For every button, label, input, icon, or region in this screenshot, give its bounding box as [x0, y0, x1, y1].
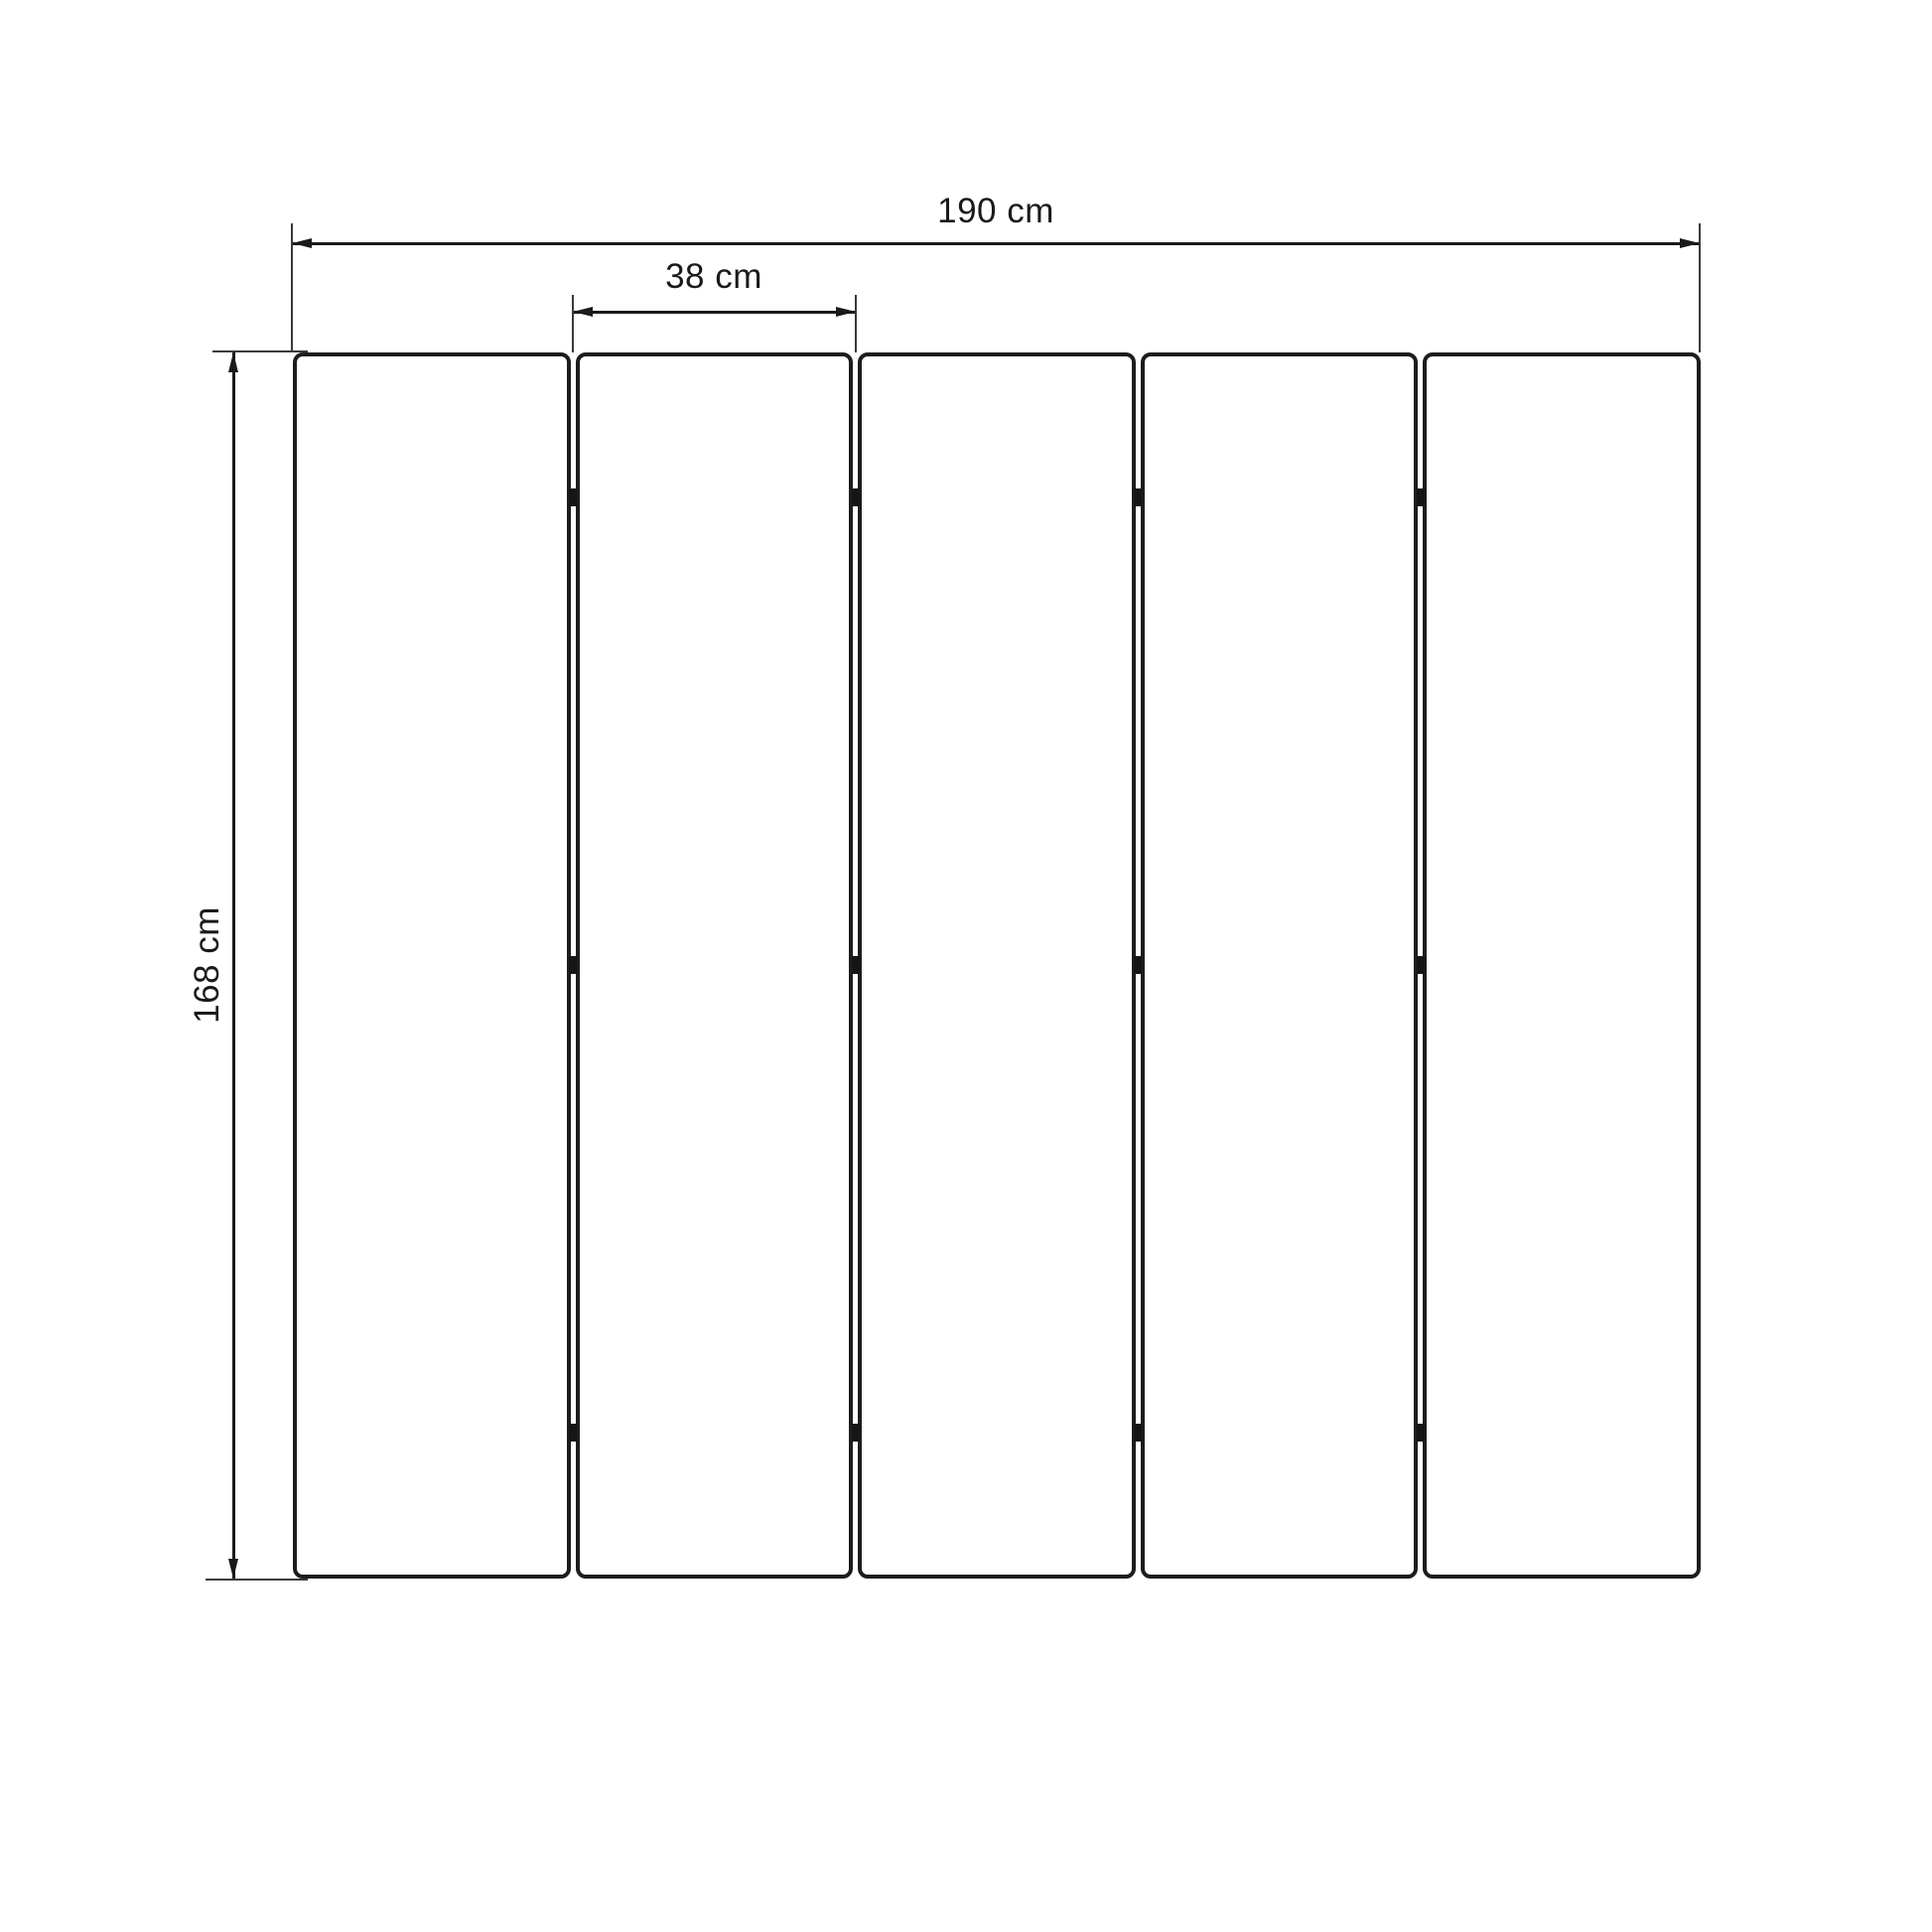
hinge-icon	[1417, 956, 1425, 974]
total-width-dimension-label: 190 cm	[887, 191, 1105, 232]
arrowhead-down-icon	[228, 1559, 238, 1579]
hinge-icon	[1134, 956, 1142, 974]
hinge-icon	[852, 956, 860, 974]
hinge-icon	[569, 1424, 577, 1442]
hinge-icon	[1134, 488, 1142, 506]
extension-line-panel-left	[572, 295, 574, 352]
drawing-canvas: 190 cm 38 cm 168 cm	[0, 0, 1932, 1932]
extension-line-total-right	[1699, 223, 1701, 352]
folding-screen	[293, 352, 1701, 1579]
panel-2	[576, 352, 854, 1579]
hinge-icon	[1417, 1424, 1425, 1442]
total-width-dimension-line	[292, 242, 1700, 245]
hinge-icon	[1134, 1424, 1142, 1442]
panel-width-dimension-line	[573, 311, 856, 314]
arrowhead-right-icon	[836, 307, 856, 317]
arrowhead-right-icon	[1680, 238, 1700, 248]
hinge-icon	[1417, 488, 1425, 506]
height-dimension-label: 168 cm	[187, 856, 228, 1074]
panel-5	[1423, 352, 1701, 1579]
arrowhead-left-icon	[573, 307, 593, 317]
panel-4	[1141, 352, 1419, 1579]
extension-line-total-left	[291, 223, 293, 352]
hinge-icon	[852, 488, 860, 506]
arrowhead-left-icon	[292, 238, 312, 248]
panel-3	[858, 352, 1136, 1579]
panel-1	[293, 352, 571, 1579]
arrowhead-up-icon	[228, 352, 238, 372]
height-dimension-line	[232, 352, 235, 1579]
extension-line-height-bottom	[206, 1579, 308, 1581]
hinge-icon	[852, 1424, 860, 1442]
hinge-icon	[569, 488, 577, 506]
panel-width-dimension-label: 38 cm	[605, 256, 823, 298]
hinge-icon	[569, 956, 577, 974]
extension-line-panel-right	[855, 295, 857, 352]
